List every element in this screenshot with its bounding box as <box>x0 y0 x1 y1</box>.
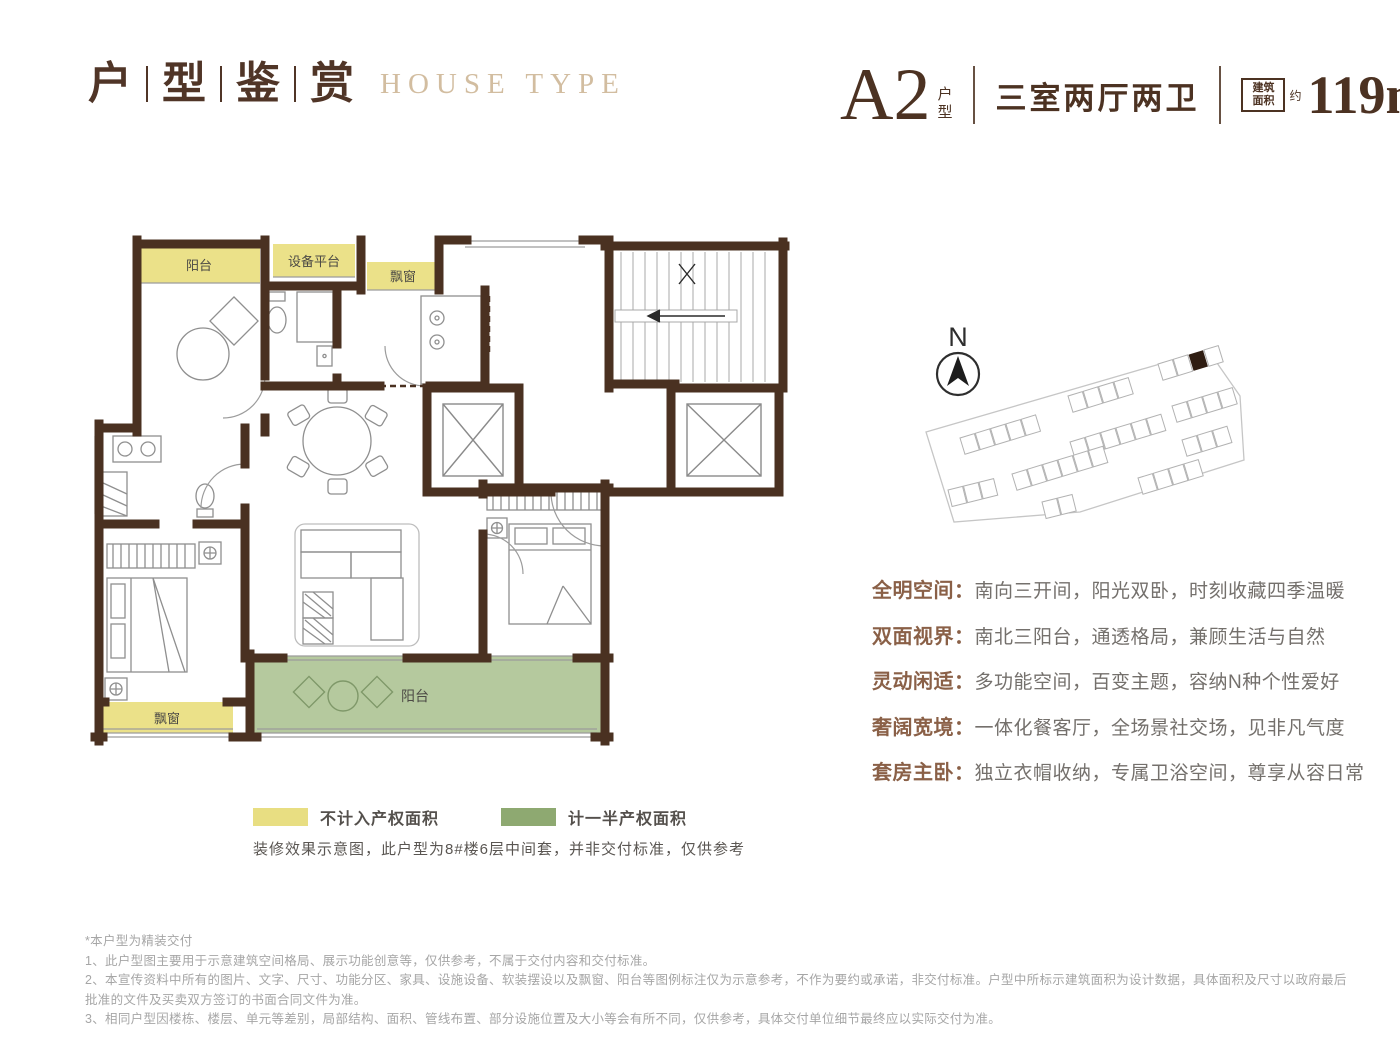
feature-text: 独立衣帽收纳，专属卫浴空间，尊享从容日常 <box>975 758 1365 785</box>
plan-label-balcony-top: 阳台 <box>186 258 212 273</box>
feature-text: 多功能空间，百变主题，容纳N种个性爱好 <box>975 667 1340 694</box>
plan-labels: 阳台 设备平台 飘窗 飘窗 阳台 <box>154 254 429 726</box>
plan-label-bay-window-bottom: 飘窗 <box>154 711 180 726</box>
feature-item: 奢阔宽境： 一体化餐客厅，全场景社交场，见非凡气度 <box>872 711 1332 740</box>
area-badge: 建筑 面积 <box>1241 78 1285 112</box>
legend: 不计入产权面积 计一半产权面积 <box>253 805 687 829</box>
feature-list: 全明空间： 南向三开间，阳光双卧，时刻收藏四季温暖 双面视界： 南北三阳台，通透… <box>872 574 1332 802</box>
disclaimer: *本户型为精装交付 1、此户型图主要用于示意建筑空间格局、展示功能创意等，仅供参… <box>85 932 1357 1030</box>
page-root: 户 型 鉴 赏 HOUSE TYPE A2 户型 三室两厅两卫 建筑 面积 约 … <box>0 0 1400 1050</box>
legend-swatch-green <box>501 808 556 826</box>
area-approx-label: 约 <box>1289 87 1301 104</box>
stairs <box>615 252 765 382</box>
elevator-right <box>687 404 761 476</box>
page-title: 户 型 鉴 赏 HOUSE TYPE <box>88 62 626 106</box>
disclaimer-line: 3、相同户型因楼栋、楼层、单元等差别，局部结构、面积、管线布置、部分设施位置及大… <box>85 1010 1357 1030</box>
header-divider <box>973 66 975 124</box>
feature-label: 灵动闲适： <box>872 665 975 694</box>
unit-layout: 三室两厅两卫 <box>995 73 1199 118</box>
site-plan <box>920 340 1260 535</box>
title-divider <box>146 66 148 102</box>
feature-label: 奢阔宽境： <box>872 711 975 740</box>
feature-item: 灵动闲适： 多功能空间，百变主题，容纳N种个性爱好 <box>872 665 1332 694</box>
header-divider <box>1219 66 1221 124</box>
feature-label: 双面视界： <box>872 620 975 649</box>
title-char: 型 <box>162 62 206 106</box>
disclaimer-line: 1、此户型图主要用于示意建筑空间格局、展示功能创意等，仅供参考，不属于交付内容和… <box>85 952 1357 972</box>
feature-label: 全明空间： <box>872 574 975 603</box>
disclaimer-line: *本户型为精装交付 <box>85 932 1357 952</box>
unit-code-suffix: 户型 <box>937 86 953 122</box>
legend-item-label: 计一半产权面积 <box>568 805 687 829</box>
area-value: 119m2 <box>1307 68 1400 122</box>
disclaimer-line: 2、本宣传资料中所有的图片、文字、尺寸、功能分区、家具、设施设备、软装摆设以及飘… <box>85 971 1357 1010</box>
legend-note: 装修效果示意图，此户型为8#楼6层中间套，并非交付标准，仅供参考 <box>253 838 745 859</box>
title-char: 鉴 <box>236 62 280 106</box>
feature-item: 套房主卧： 独立衣帽收纳，专属卫浴空间，尊享从容日常 <box>872 756 1332 785</box>
title-divider <box>220 66 222 102</box>
legend-swatch-yellow <box>253 808 308 826</box>
area-badge-line2: 面积 <box>1252 95 1274 107</box>
area-badge-line1: 建筑 <box>1252 82 1274 94</box>
feature-text: 一体化餐客厅，全场景社交场，见非凡气度 <box>975 713 1346 740</box>
unit-code: A2 <box>840 58 930 132</box>
site-buildings <box>948 346 1237 519</box>
unit-info: A2 户型 三室两厅两卫 建筑 面积 约 119m2 <box>840 50 1400 140</box>
title-divider <box>294 66 296 102</box>
feature-text: 南向三开间，阳光双卧，时刻收藏四季温暖 <box>975 576 1346 603</box>
floor-plan: 阳台 设备平台 飘窗 飘窗 阳台 <box>85 226 805 766</box>
feature-item: 全明空间： 南向三开间，阳光双卧，时刻收藏四季温暖 <box>872 574 1332 603</box>
page-title-en: HOUSE TYPE <box>380 68 626 101</box>
feature-text: 南北三阳台，通透格局，兼顾生活与自然 <box>975 622 1326 649</box>
legend-item-label: 不计入产权面积 <box>320 805 439 829</box>
title-char: 赏 <box>310 62 354 106</box>
title-char: 户 <box>88 62 132 106</box>
plan-label-bay-window-top: 飘窗 <box>390 269 416 284</box>
plan-label-balcony-bottom: 阳台 <box>401 688 429 704</box>
plan-label-equipment-platform: 设备平台 <box>288 254 340 269</box>
feature-item: 双面视界： 南北三阳台，通透格局，兼顾生活与自然 <box>872 620 1332 649</box>
feature-label: 套房主卧： <box>872 756 975 785</box>
elevator-left <box>443 404 503 476</box>
dashed-openings <box>380 296 489 386</box>
